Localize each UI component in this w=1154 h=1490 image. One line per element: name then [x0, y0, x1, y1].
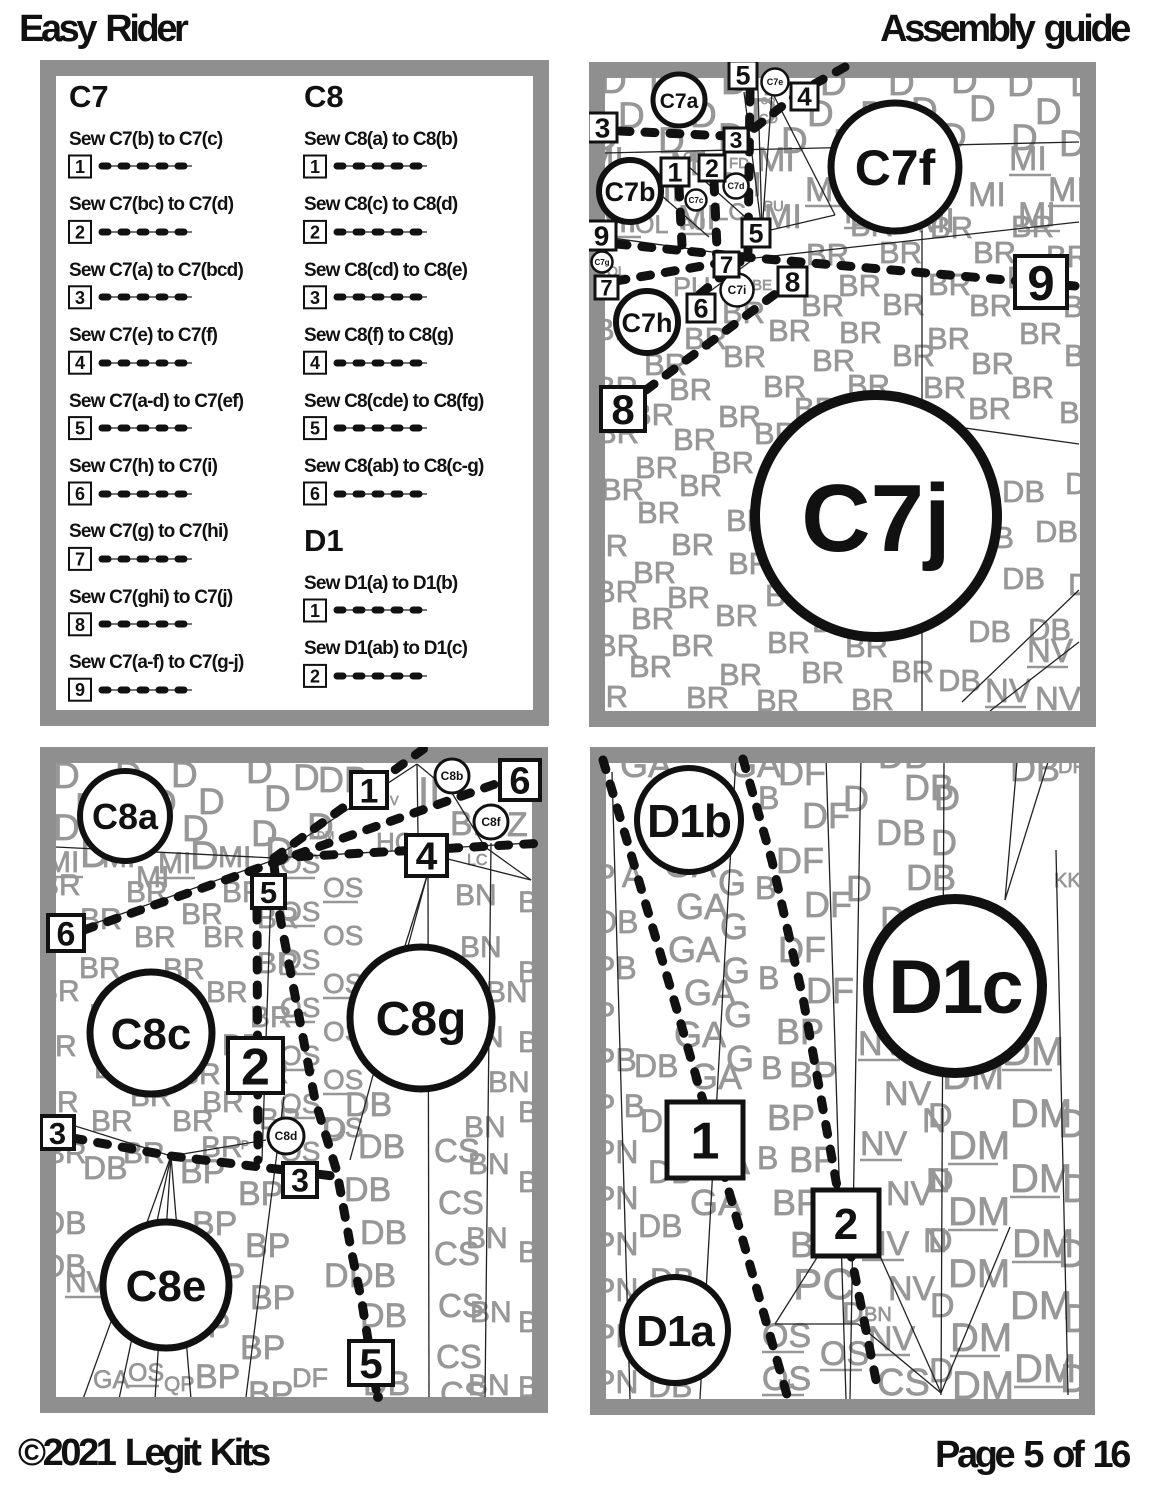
svg-text:5: 5	[260, 875, 277, 910]
svg-text:BN: BN	[488, 1066, 530, 1099]
svg-text:C8b: C8b	[441, 769, 464, 783]
svg-text:Sew C7(bc) to C7(d): Sew C7(bc) to C7(d)	[69, 194, 234, 215]
svg-text:Sew C7(g) to C7(hi): Sew C7(g) to C7(hi)	[69, 521, 228, 542]
svg-text:OS: OS	[323, 920, 363, 951]
svg-text:MI: MI	[757, 141, 795, 179]
svg-text:D: D	[969, 88, 996, 129]
svg-text:D: D	[190, 834, 219, 878]
svg-text:B: B	[755, 870, 776, 906]
svg-text:C8c: C8c	[111, 1010, 192, 1059]
svg-text:D: D	[324, 1257, 349, 1295]
svg-text:BR: BR	[669, 372, 712, 407]
svg-text:C8a: C8a	[92, 796, 159, 837]
svg-text:B: B	[761, 1050, 782, 1086]
svg-text:DB: DB	[938, 663, 981, 698]
svg-text:Sew C8(c) to C8(d): Sew C8(c) to C8(d)	[304, 194, 458, 215]
svg-text:BE: BE	[752, 277, 772, 294]
svg-text:2: 2	[75, 222, 85, 242]
svg-text:5: 5	[748, 219, 763, 249]
svg-text:5: 5	[310, 419, 320, 439]
svg-text:Sew C7(b) to C7(c): Sew C7(b) to C7(c)	[69, 129, 223, 150]
svg-text:BR: BR	[882, 287, 925, 322]
svg-text:C8: C8	[304, 79, 344, 114]
svg-text:C8e: C8e	[126, 1262, 207, 1311]
svg-text:Sew C8(f) to C8(g): Sew C8(f) to C8(g)	[304, 325, 454, 346]
svg-text:DB: DB	[1002, 474, 1045, 509]
svg-text:DB: DB	[360, 1214, 407, 1252]
svg-text:BP: BP	[238, 1175, 283, 1213]
svg-text:BR: BR	[684, 321, 727, 356]
svg-text:6: 6	[509, 761, 530, 803]
svg-text:OS: OS	[128, 1359, 164, 1387]
svg-text:DF: DF	[804, 884, 852, 925]
svg-text:BP: BP	[767, 1097, 815, 1138]
svg-text:V: V	[390, 793, 399, 808]
svg-text:BR: BR	[679, 468, 722, 503]
svg-text:6: 6	[75, 484, 85, 504]
svg-text:GA: GA	[668, 929, 720, 970]
svg-text:Sew C7(a-f) to C7(g-j): Sew C7(a-f) to C7(g-j)	[69, 652, 244, 673]
svg-text:P: P	[241, 1138, 249, 1152]
svg-text:CS: CS	[877, 1362, 930, 1404]
svg-text:D: D	[928, 1097, 953, 1135]
svg-text:D1a: D1a	[636, 1307, 715, 1356]
svg-text:BP: BP	[776, 1011, 824, 1052]
svg-text:7: 7	[75, 549, 85, 569]
svg-text:DM: DM	[948, 1124, 1010, 1168]
svg-text:BR: BR	[971, 346, 1014, 381]
svg-text:C7i: C7i	[728, 283, 747, 297]
svg-text:2: 2	[310, 666, 320, 686]
svg-text:3: 3	[730, 127, 743, 153]
svg-text:BR: BR	[671, 628, 714, 663]
svg-text:DB: DB	[344, 1171, 391, 1209]
svg-text:NV: NV	[860, 1125, 908, 1163]
svg-text:DB: DB	[968, 614, 1011, 649]
svg-text:Sew C7(a) to C7(bcd): Sew C7(a) to C7(bcd)	[69, 260, 243, 281]
svg-text:Sew C7(h) to C7(i): Sew C7(h) to C7(i)	[69, 456, 218, 477]
svg-text:DF: DF	[776, 840, 824, 881]
svg-text:C7d: C7d	[727, 181, 744, 191]
svg-text:BR: BR	[629, 649, 672, 684]
svg-text:BR: BR	[1019, 316, 1062, 351]
svg-text:BR: BR	[715, 598, 758, 633]
svg-text:5: 5	[359, 1340, 382, 1387]
svg-text:DB: DB	[906, 857, 956, 898]
svg-text:BR: BR	[838, 268, 881, 303]
svg-text:1: 1	[667, 158, 682, 188]
svg-text:G: G	[718, 862, 746, 903]
svg-text:BR: BR	[637, 495, 680, 530]
svg-text:BR: BR	[801, 655, 844, 690]
svg-text:5: 5	[75, 419, 85, 439]
svg-text:NV: NV	[1027, 632, 1073, 669]
svg-text:Sew C8(ab) to C8(c-g): Sew C8(ab) to C8(c-g)	[304, 456, 484, 477]
svg-text:Sew D1(ab) to D1(c): Sew D1(ab) to D1(c)	[304, 638, 468, 659]
svg-text:DF: DF	[292, 1363, 328, 1393]
svg-text:BR: BR	[203, 921, 245, 954]
svg-text:OS: OS	[323, 872, 363, 903]
svg-text:C7b: C7b	[604, 177, 655, 207]
svg-text:C8g: C8g	[376, 993, 467, 1046]
svg-text:G: G	[724, 994, 752, 1035]
svg-text:BR: BR	[671, 527, 714, 562]
svg-text:9: 9	[1027, 257, 1054, 311]
svg-text:KK: KK	[1054, 870, 1081, 892]
svg-text:Sew D1(a) to D1(b): Sew D1(a) to D1(b)	[304, 573, 458, 594]
svg-text:Sew C7(a-d) to C7(ef): Sew C7(a-d) to C7(ef)	[69, 391, 244, 412]
svg-text:Sew C7(ghi) to C7(j): Sew C7(ghi) to C7(j)	[69, 587, 233, 608]
svg-text:D: D	[929, 1162, 954, 1200]
svg-text:CS: CS	[438, 1184, 484, 1221]
svg-text:6: 6	[57, 915, 76, 953]
svg-text:Sew C8(cde) to C8(fg): Sew C8(cde) to C8(fg)	[304, 391, 484, 412]
svg-text:7: 7	[720, 252, 733, 279]
svg-text:3: 3	[595, 112, 611, 143]
svg-text:2: 2	[834, 1200, 858, 1249]
svg-text:D: D	[843, 778, 869, 819]
svg-text:2: 2	[310, 222, 320, 242]
svg-text:C7g: C7g	[594, 258, 609, 267]
svg-text:C7h: C7h	[621, 308, 672, 338]
svg-text:OO: OO	[761, 96, 775, 106]
svg-text:DM: DM	[950, 1316, 1012, 1360]
svg-text:BR: BR	[686, 680, 729, 715]
svg-text:DB: DB	[83, 1150, 127, 1186]
svg-text:B: B	[757, 1140, 778, 1176]
svg-text:CS: CS	[436, 1338, 482, 1375]
svg-text:Sew C8(a) to C8(b): Sew C8(a) to C8(b)	[304, 129, 458, 150]
svg-text:C7f: C7f	[855, 140, 936, 196]
svg-text:BR: BR	[206, 976, 248, 1009]
svg-text:DB: DB	[358, 1128, 405, 1166]
svg-text:1: 1	[310, 157, 320, 177]
svg-text:NV: NV	[985, 672, 1031, 709]
svg-text:C7c: C7c	[689, 196, 704, 205]
svg-text:BR: BR	[1011, 370, 1054, 405]
svg-text:BP: BP	[245, 1227, 290, 1265]
svg-text:DB: DB	[1002, 561, 1045, 596]
svg-text:C7j: C7j	[801, 465, 950, 572]
svg-text:BP: BP	[195, 1358, 240, 1396]
svg-text:C7e: C7e	[767, 77, 784, 87]
svg-text:6: 6	[693, 294, 708, 324]
svg-text:D1c: D1c	[888, 945, 1022, 1030]
svg-text:8: 8	[785, 266, 801, 297]
svg-text:3: 3	[49, 1116, 66, 1151]
svg-text:CS: CS	[434, 1132, 480, 1169]
svg-text:D: D	[293, 757, 320, 798]
svg-text:4: 4	[797, 82, 812, 112]
svg-text:DM: DM	[948, 1190, 1010, 1234]
svg-text:D: D	[934, 777, 960, 818]
svg-text:DB: DB	[638, 1208, 682, 1244]
svg-text:BR: BR	[723, 339, 766, 374]
svg-text:MI: MI	[1009, 140, 1047, 178]
svg-text:D: D	[930, 1287, 955, 1325]
svg-text:1: 1	[691, 1113, 720, 1171]
svg-text:6: 6	[310, 484, 320, 504]
svg-text:1: 1	[310, 601, 320, 621]
svg-text:DB: DB	[634, 1048, 678, 1084]
svg-text:CS: CS	[438, 1287, 484, 1324]
svg-text:D: D	[928, 1222, 953, 1260]
svg-text:DB: DB	[1035, 514, 1078, 549]
svg-text:2: 2	[241, 1038, 270, 1096]
svg-text:BR: BR	[673, 422, 716, 457]
svg-text:Z: Z	[507, 806, 528, 844]
svg-text:4: 4	[416, 836, 438, 879]
svg-text:BR: BR	[891, 654, 934, 689]
svg-text:G: G	[720, 906, 748, 947]
svg-text:GA: GA	[93, 1366, 129, 1394]
svg-text:C7: C7	[69, 79, 109, 114]
svg-text:DF: DF	[806, 970, 854, 1011]
svg-text:9: 9	[594, 220, 610, 251]
svg-text:D: D	[1035, 91, 1062, 132]
svg-text:4: 4	[75, 353, 85, 373]
svg-text:8: 8	[75, 615, 85, 635]
svg-text:G: G	[726, 1038, 754, 1079]
svg-text:BR: BR	[968, 391, 1011, 426]
svg-text:BR: BR	[134, 921, 176, 954]
svg-text:C7a: C7a	[660, 90, 699, 113]
svg-text:B: B	[758, 960, 779, 996]
svg-text:BR: BR	[969, 288, 1012, 323]
svg-text:8: 8	[611, 386, 634, 433]
svg-text:G: G	[722, 950, 750, 991]
svg-text:C8f: C8f	[481, 815, 501, 829]
svg-text:DB: DB	[876, 812, 926, 853]
svg-text:1: 1	[360, 772, 379, 810]
svg-text:DM: DM	[948, 1252, 1010, 1296]
svg-text:2: 2	[705, 155, 719, 183]
svg-text:BR: BR	[892, 338, 935, 373]
svg-text:3: 3	[310, 288, 320, 308]
svg-text:7: 7	[600, 275, 612, 300]
svg-text:9: 9	[75, 680, 85, 700]
svg-text:C8d: C8d	[275, 1129, 298, 1143]
svg-text:3: 3	[75, 288, 85, 308]
svg-text:D: D	[53, 807, 80, 848]
svg-text:MI: MI	[968, 176, 1006, 214]
svg-text:D1b: D1b	[647, 795, 731, 847]
svg-text:BP: BP	[240, 1329, 285, 1367]
svg-text:5: 5	[735, 62, 750, 91]
svg-text:Sew C8(cd) to C8(e): Sew C8(cd) to C8(e)	[304, 260, 468, 281]
svg-text:BR: BR	[768, 313, 811, 348]
svg-text:D1: D1	[304, 523, 344, 558]
svg-text:4: 4	[310, 353, 320, 373]
svg-text:1: 1	[75, 157, 85, 177]
svg-text:Sew C7(e) to C7(f): Sew C7(e) to C7(f)	[69, 325, 218, 346]
svg-text:CS: CS	[434, 1235, 480, 1272]
svg-text:PU: PU	[763, 198, 784, 215]
svg-text:3: 3	[291, 1163, 309, 1199]
